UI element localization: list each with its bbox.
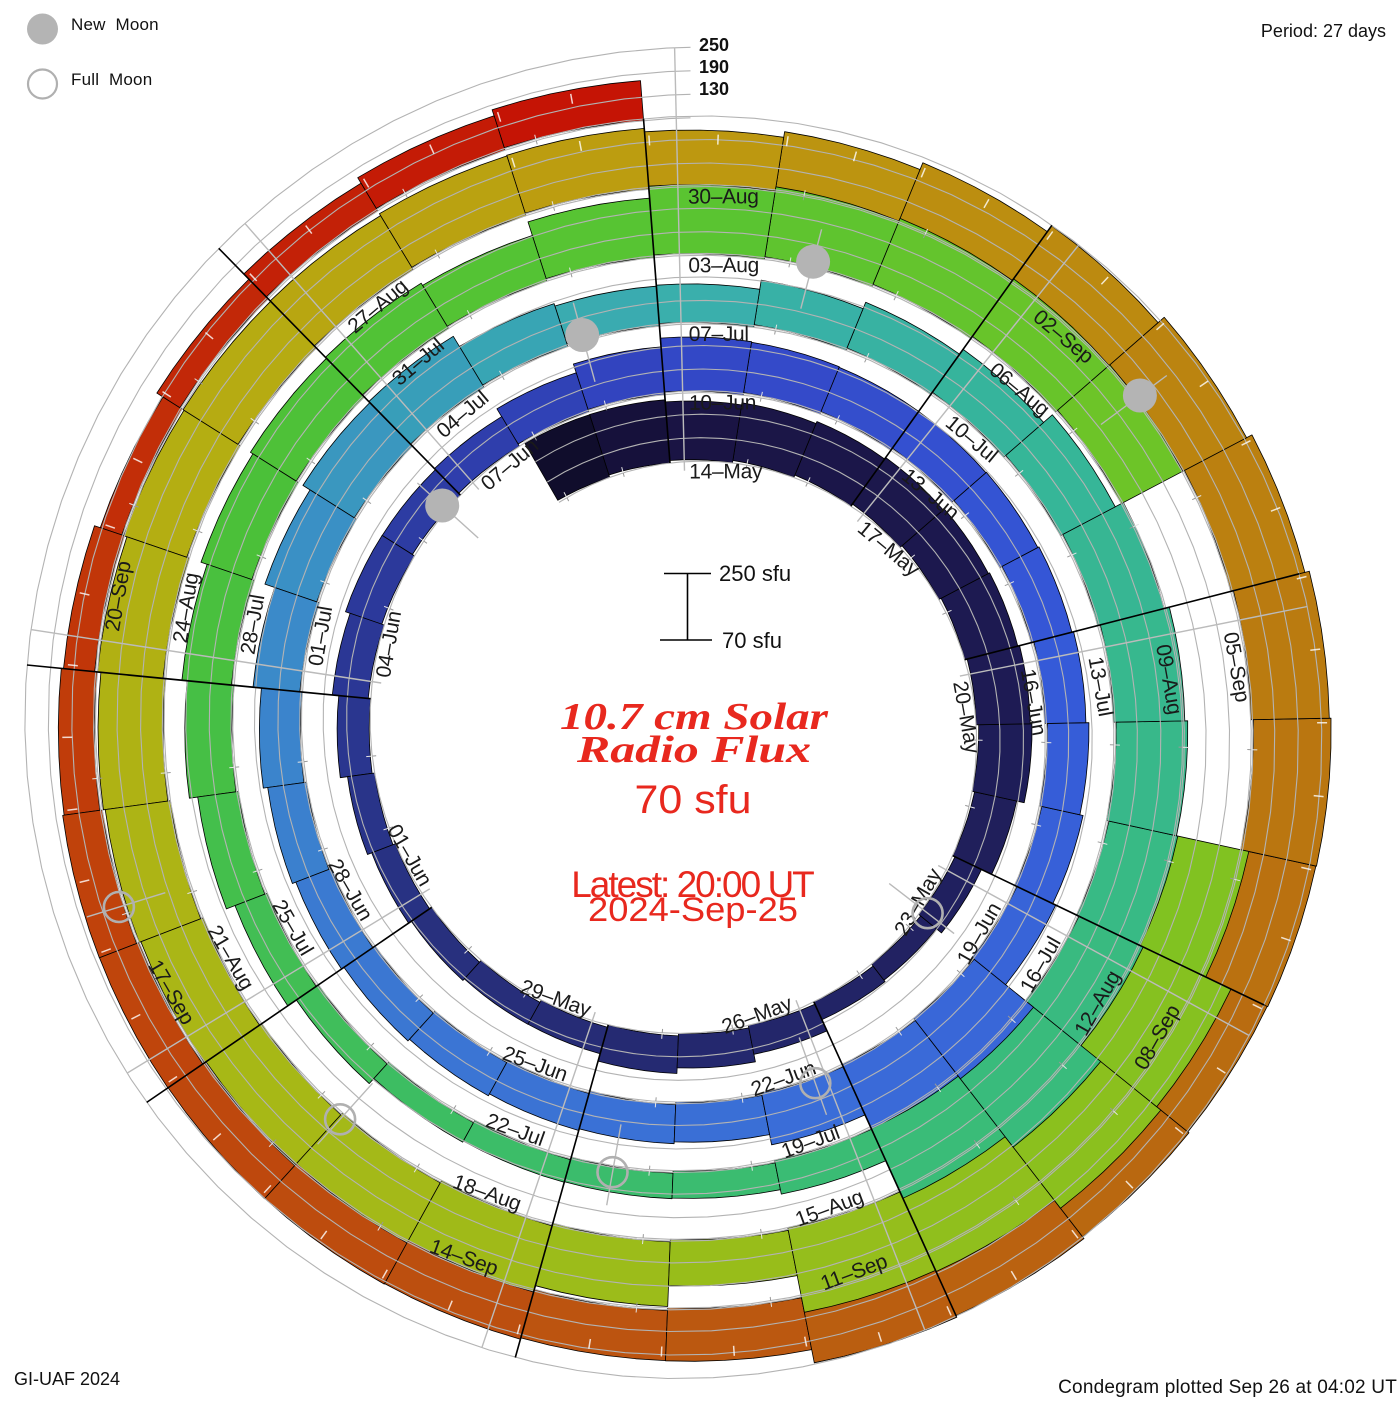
svg-text:Radio Flux: Radio Flux (576, 729, 811, 771)
svg-text:Period: 27 days: Period: 27 days (1261, 21, 1386, 41)
svg-text:14–May: 14–May (689, 460, 763, 483)
svg-text:2024-Sep-25: 2024-Sep-25 (588, 891, 798, 929)
svg-text:190: 190 (699, 57, 729, 77)
svg-text:70 sfu: 70 sfu (635, 778, 752, 822)
svg-text:30–Aug: 30–Aug (688, 185, 759, 208)
svg-text:10–Jun: 10–Jun (689, 391, 756, 414)
svg-text:07–Jul: 07–Jul (689, 323, 749, 346)
svg-text:130: 130 (699, 79, 729, 99)
svg-text:GI-UAF 2024: GI-UAF 2024 (14, 1369, 120, 1389)
svg-text:Full Moon: Full Moon (71, 70, 152, 89)
svg-text:250 sfu: 250 sfu (719, 561, 791, 586)
svg-text:70 sfu: 70 sfu (722, 628, 782, 653)
svg-text:03–Aug: 03–Aug (688, 254, 759, 277)
svg-text:New Moon: New Moon (71, 15, 159, 34)
svg-text:250: 250 (699, 35, 729, 55)
svg-text:Condegram plotted Sep 26 at 04: Condegram plotted Sep 26 at 04:02 UT (1058, 1377, 1397, 1398)
